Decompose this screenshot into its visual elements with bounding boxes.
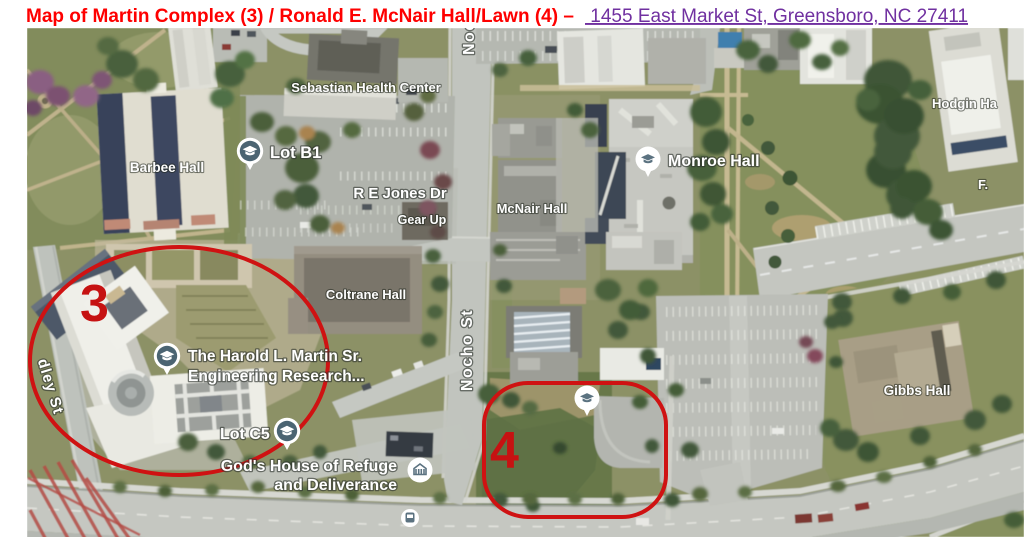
svg-text:Hodgin Ha: Hodgin Ha <box>932 96 998 111</box>
svg-text:Coltrane Hall: Coltrane Hall <box>326 287 406 302</box>
svg-text:and Deliverance: and Deliverance <box>274 477 397 494</box>
svg-text:4: 4 <box>490 422 519 480</box>
svg-text:Sebastian Health Center: Sebastian Health Center <box>291 80 441 95</box>
svg-text:Gibbs Hall: Gibbs Hall <box>884 383 951 398</box>
svg-text:3: 3 <box>80 275 109 333</box>
svg-text:God's House of Refuge: God's House of Refuge <box>221 458 397 475</box>
svg-text:Lot C5: Lot C5 <box>220 426 270 443</box>
svg-text:Monroe Hall: Monroe Hall <box>668 153 760 170</box>
svg-text:McNair Hall: McNair Hall <box>497 201 568 216</box>
svg-text:Nocho St: Nocho St <box>459 309 476 391</box>
svg-text:Engineering Research...: Engineering Research... <box>188 368 365 385</box>
svg-text:1455 East Market St, Greensbor: 1455 East Market St, Greensboro, NC 2741… <box>585 6 968 27</box>
svg-text:Lot B1: Lot B1 <box>270 144 321 162</box>
svg-text:Map of Martin Complex (3) / Ro: Map of Martin Complex (3) / Ronald E. Mc… <box>26 6 574 27</box>
svg-text:F.: F. <box>978 177 988 192</box>
svg-text:Gear Up: Gear Up <box>398 213 447 227</box>
svg-text:Barbee Hall: Barbee Hall <box>130 160 204 175</box>
svg-text:The Harold L. Martin Sr.: The Harold L. Martin Sr. <box>188 348 362 365</box>
svg-text:R E Jones Dr: R E Jones Dr <box>353 185 447 202</box>
